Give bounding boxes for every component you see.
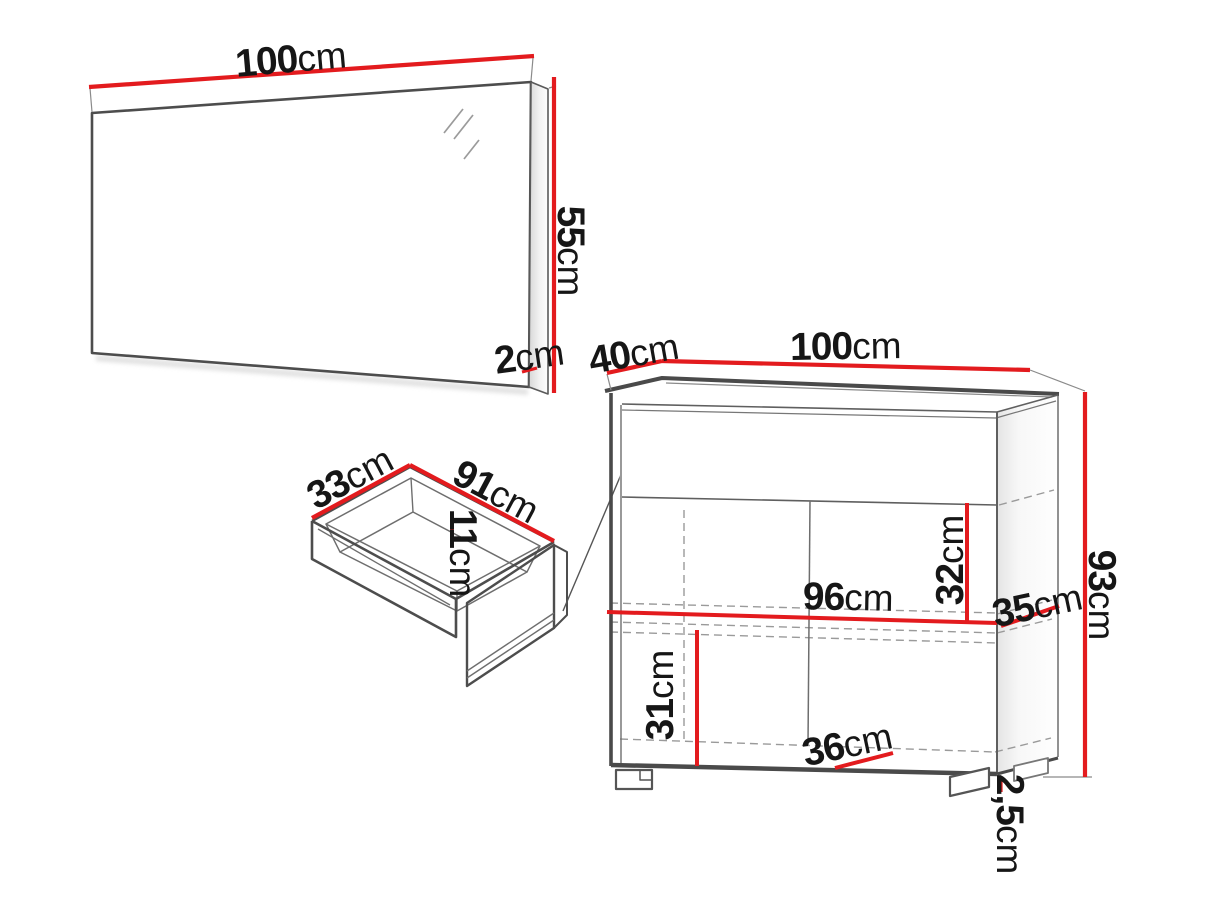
cabinet-foot-height-label: 2,5cm [988,774,1031,875]
cabinet-inner-width-label: 96cm [802,575,893,620]
cabinet-upper-inner-height-label: 32cm [929,515,972,606]
mirror-width-label: 100cm [234,33,349,86]
furniture-dimension-diagram: 100cm 55cm 2cm 33cm 91cm 11cm [0,0,1214,910]
drawer-figure: 33cm 91cm 11cm [300,438,634,686]
cabinet-lower-inner-height-label: 31cm [639,650,682,741]
cabinet-depth-label: 40cm [585,325,682,383]
mirror-height-label: 55cm [549,206,592,297]
cabinet-width-label: 100cm [790,324,902,369]
cabinet-figure: 40cm 100cm 93cm 32cm 96cm 35cm 31cm 36cm… [585,324,1123,874]
mirror-front-face [92,82,531,387]
drawer-inner-height-label: 11cm [441,509,484,598]
mirror-figure: 100cm 55cm 2cm [89,33,592,394]
cabinet-height-label: 93cm [1080,550,1123,641]
diagram-page: 100cm 55cm 2cm 33cm 91cm 11cm [0,0,1214,910]
